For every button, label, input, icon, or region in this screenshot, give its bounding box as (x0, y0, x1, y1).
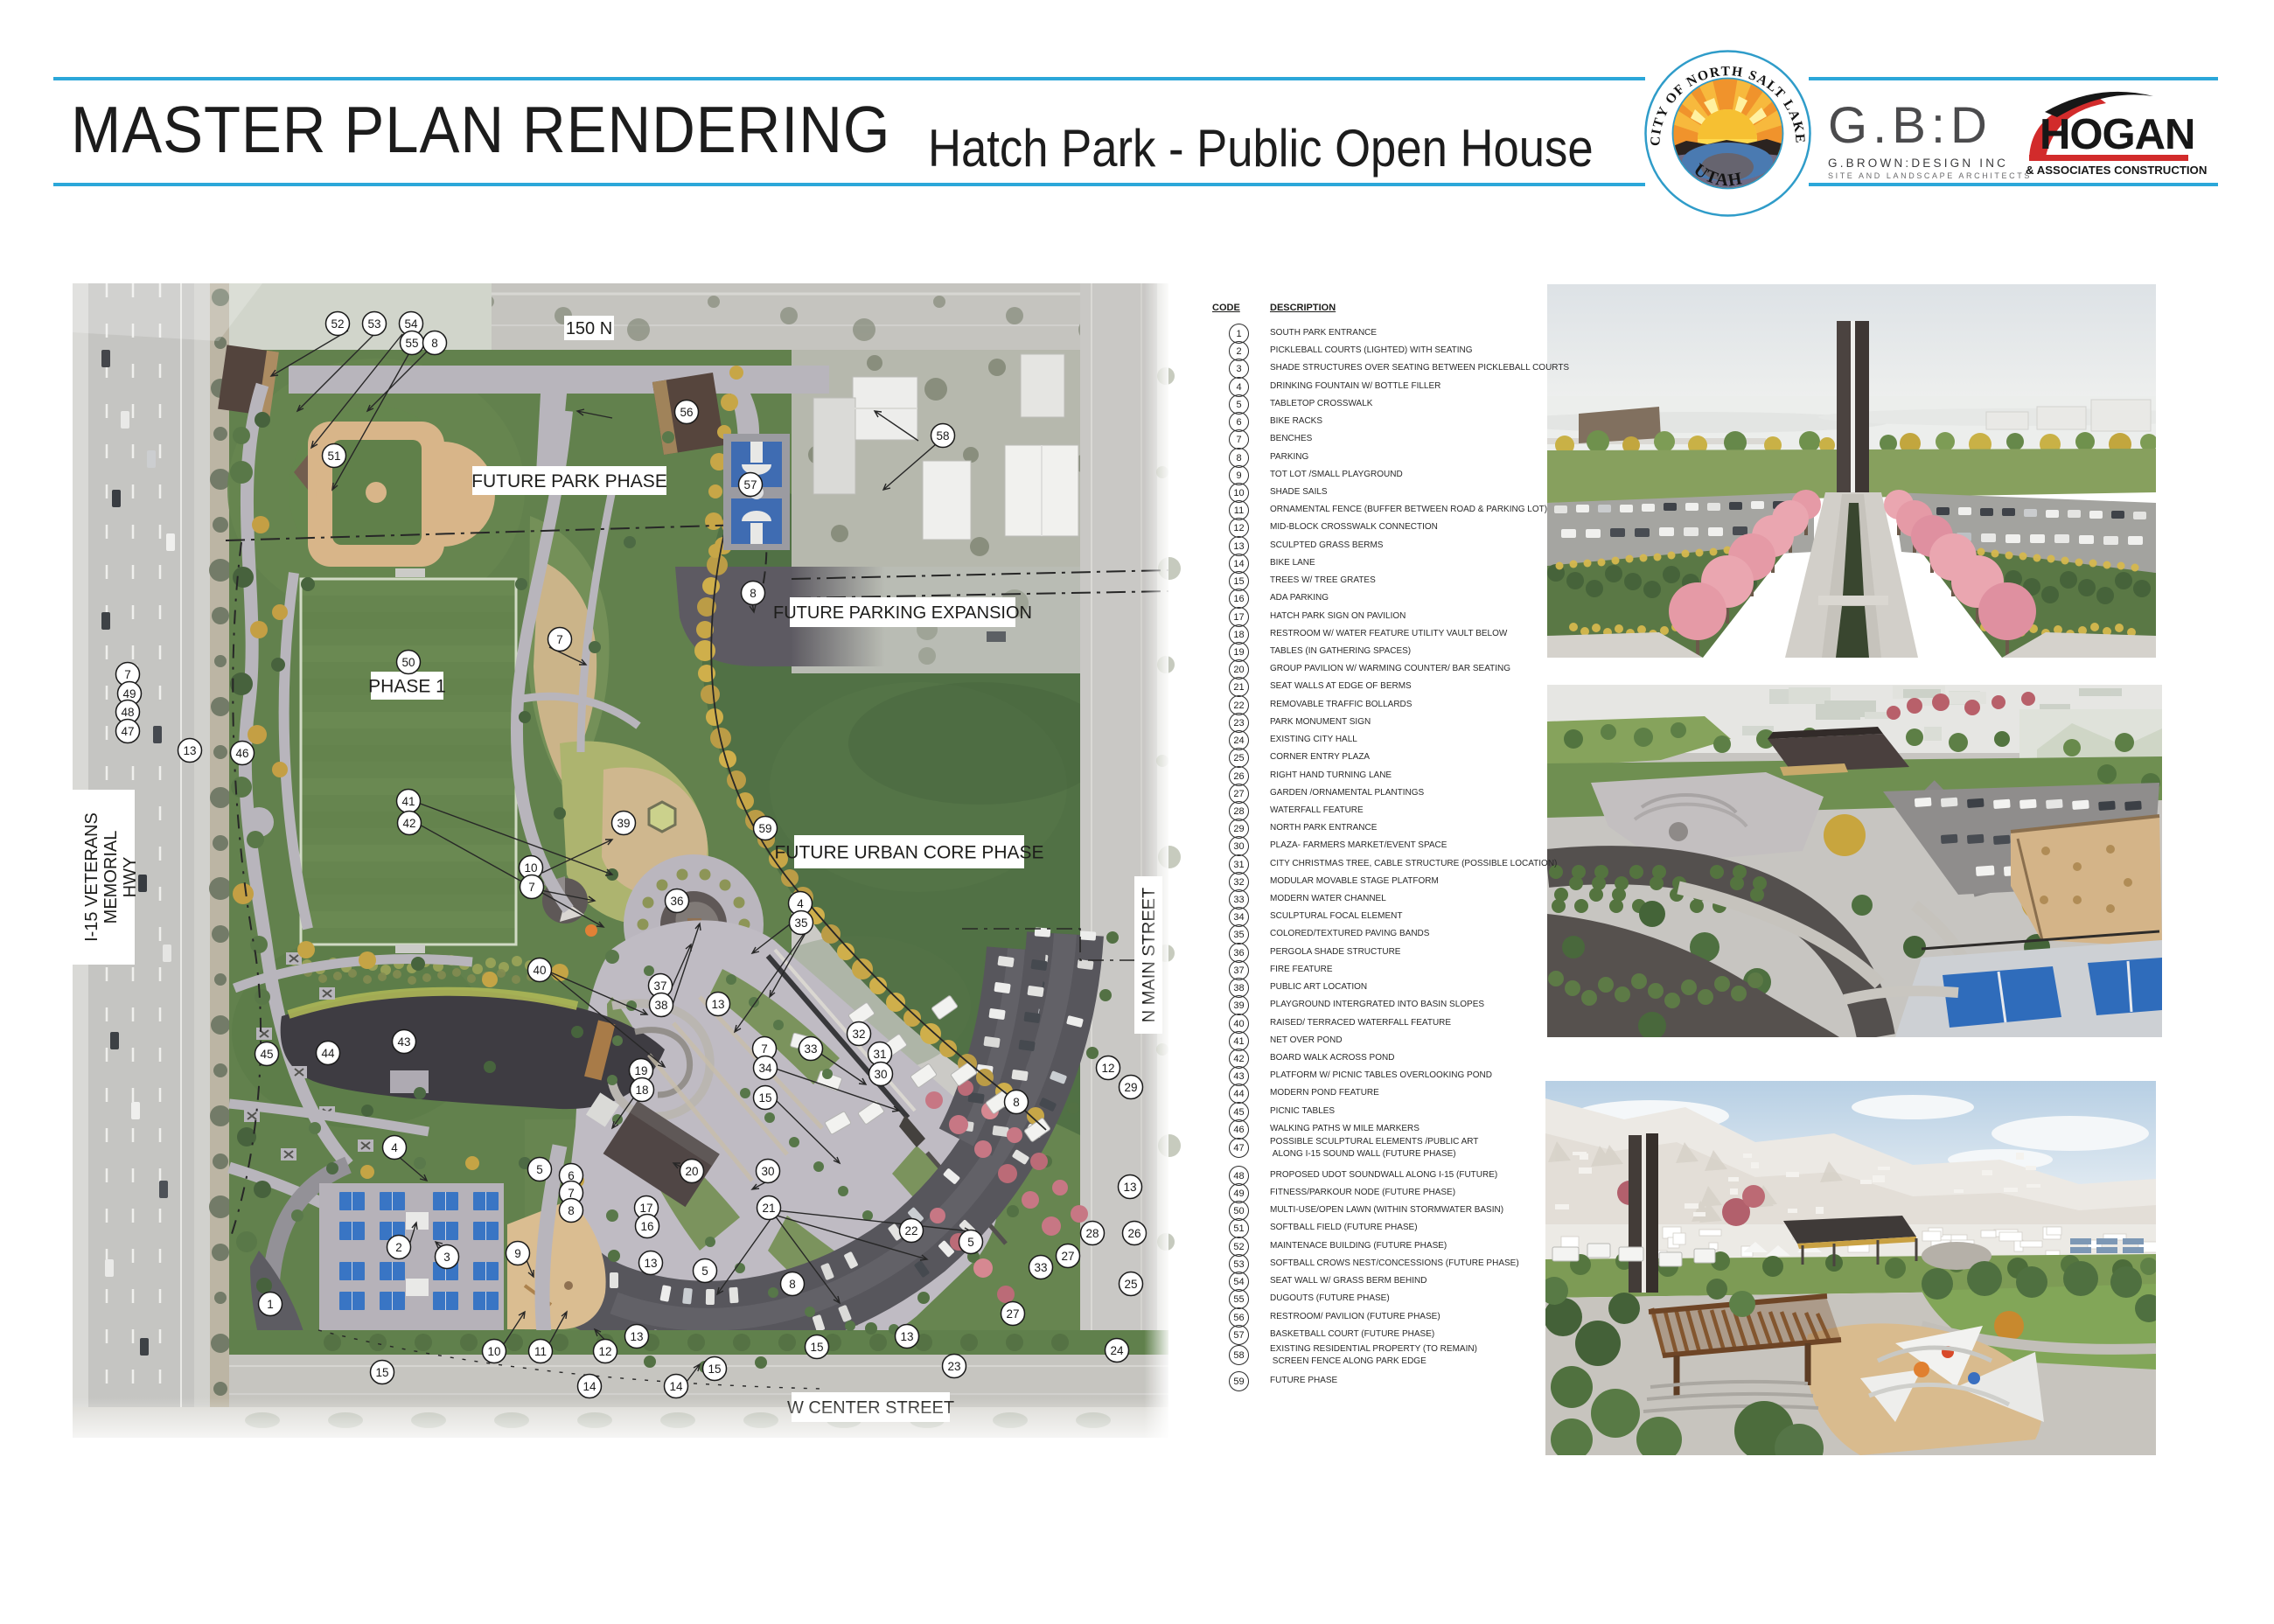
svg-text:4: 4 (797, 897, 804, 910)
svg-text:44: 44 (321, 1047, 335, 1060)
svg-text:24: 24 (1110, 1344, 1124, 1357)
svg-text:FUTURE URBAN CORE PHASE: FUTURE URBAN CORE PHASE (774, 843, 1043, 863)
svg-text:8: 8 (750, 587, 757, 600)
svg-text:4: 4 (391, 1141, 398, 1154)
svg-text:51: 51 (327, 450, 340, 463)
svg-text:13: 13 (630, 1330, 643, 1343)
svg-text:13: 13 (900, 1330, 913, 1343)
svg-text:16: 16 (640, 1220, 653, 1233)
svg-text:15: 15 (708, 1363, 721, 1376)
svg-text:43: 43 (397, 1035, 410, 1049)
svg-text:5: 5 (967, 1236, 974, 1249)
svg-text:10: 10 (487, 1345, 500, 1358)
svg-text:47: 47 (121, 725, 134, 738)
svg-text:1: 1 (267, 1298, 274, 1311)
svg-text:56: 56 (680, 406, 693, 419)
svg-text:59: 59 (758, 822, 771, 835)
svg-text:8: 8 (789, 1278, 796, 1291)
svg-text:7: 7 (761, 1042, 768, 1056)
svg-text:40: 40 (533, 964, 546, 977)
svg-text:41: 41 (401, 795, 415, 808)
svg-text:8: 8 (1013, 1096, 1020, 1109)
svg-text:5: 5 (701, 1265, 708, 1278)
svg-text:53: 53 (367, 317, 380, 331)
svg-text:55: 55 (405, 337, 418, 350)
svg-text:27: 27 (1061, 1250, 1074, 1263)
svg-text:15: 15 (758, 1091, 771, 1105)
svg-text:30: 30 (761, 1165, 774, 1178)
svg-text:13: 13 (644, 1257, 657, 1270)
svg-text:32: 32 (852, 1028, 865, 1041)
svg-text:42: 42 (402, 817, 415, 830)
svg-text:20: 20 (685, 1165, 698, 1178)
svg-text:45: 45 (260, 1048, 273, 1061)
svg-text:10: 10 (524, 861, 537, 875)
svg-text:58: 58 (936, 429, 949, 443)
svg-text:13: 13 (711, 998, 724, 1011)
svg-text:49: 49 (122, 687, 136, 700)
svg-text:FUTURE PARK PHASE: FUTURE PARK PHASE (471, 471, 667, 491)
svg-text:13: 13 (183, 744, 196, 757)
svg-text:48: 48 (121, 706, 134, 719)
svg-text:23: 23 (947, 1360, 960, 1373)
svg-text:54: 54 (404, 317, 418, 331)
svg-text:8: 8 (431, 337, 438, 350)
svg-text:27: 27 (1006, 1307, 1019, 1321)
svg-text:150 N: 150 N (566, 319, 612, 338)
svg-text:7: 7 (568, 1187, 575, 1200)
svg-text:7: 7 (528, 881, 535, 894)
svg-text:26: 26 (1127, 1227, 1140, 1240)
svg-text:31: 31 (873, 1048, 886, 1061)
svg-text:15: 15 (375, 1366, 388, 1379)
svg-text:7: 7 (124, 668, 131, 681)
svg-text:34: 34 (758, 1062, 772, 1075)
svg-text:11: 11 (534, 1345, 547, 1358)
svg-text:25: 25 (1124, 1278, 1137, 1291)
svg-text:PHASE 1: PHASE 1 (368, 677, 446, 697)
svg-text:17: 17 (639, 1202, 652, 1215)
svg-text:5: 5 (536, 1163, 543, 1176)
svg-text:6: 6 (568, 1169, 575, 1182)
svg-text:HWY: HWY (121, 857, 140, 898)
svg-text:FUTURE PARKING EXPANSION: FUTURE PARKING EXPANSION (773, 603, 1032, 623)
svg-text:18: 18 (635, 1084, 648, 1097)
svg-text:8: 8 (568, 1204, 575, 1217)
svg-text:14: 14 (582, 1380, 596, 1393)
svg-text:2: 2 (395, 1241, 402, 1254)
svg-text:33: 33 (804, 1042, 817, 1056)
svg-text:14: 14 (669, 1380, 683, 1393)
svg-text:19: 19 (634, 1064, 647, 1077)
svg-text:36: 36 (670, 895, 683, 908)
svg-text:12: 12 (1101, 1062, 1114, 1075)
svg-text:MEMORIAL: MEMORIAL (101, 831, 121, 924)
svg-text:33: 33 (1034, 1261, 1047, 1274)
svg-text:39: 39 (617, 817, 630, 830)
svg-text:13: 13 (1123, 1181, 1136, 1194)
svg-text:I-15 VETERANS: I-15 VETERANS (82, 812, 101, 942)
svg-text:28: 28 (1085, 1227, 1099, 1240)
svg-text:38: 38 (654, 999, 667, 1012)
svg-text:50: 50 (401, 656, 415, 669)
svg-text:9: 9 (514, 1247, 521, 1260)
svg-text:46: 46 (235, 747, 248, 760)
svg-text:29: 29 (1124, 1081, 1137, 1094)
svg-text:7: 7 (556, 633, 563, 646)
svg-text:15: 15 (810, 1341, 823, 1354)
svg-text:52: 52 (331, 317, 344, 331)
svg-text:30: 30 (874, 1068, 887, 1081)
svg-text:3: 3 (443, 1251, 450, 1264)
svg-text:21: 21 (762, 1202, 775, 1215)
svg-text:22: 22 (904, 1224, 917, 1237)
svg-text:35: 35 (794, 917, 807, 930)
svg-text:37: 37 (653, 979, 666, 993)
svg-text:57: 57 (743, 478, 757, 491)
svg-text:12: 12 (598, 1345, 611, 1358)
